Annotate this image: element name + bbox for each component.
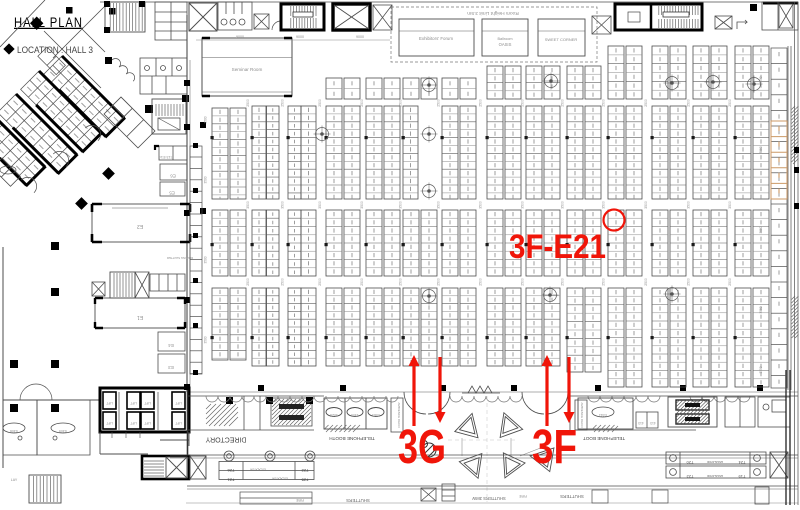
svg-text:G311: G311 <box>599 413 607 417</box>
svg-text:2500: 2500 <box>479 99 483 107</box>
svg-text:3500: 3500 <box>281 201 285 209</box>
svg-text:2500: 2500 <box>521 278 525 286</box>
svg-text:3550: 3550 <box>759 366 763 373</box>
svg-text:3500: 3500 <box>521 201 525 209</box>
svg-text:413: 413 <box>650 421 656 425</box>
svg-text:LIFT: LIFT <box>144 421 151 425</box>
svg-text:Ballroom: Ballroom <box>498 37 513 41</box>
svg-text:TELEPHONE BOOT: TELEPHONE BOOT <box>583 436 625 441</box>
svg-text:2500: 2500 <box>561 278 565 286</box>
svg-text:302A: 302A <box>329 413 337 417</box>
svg-text:2500: 2500 <box>399 99 403 107</box>
svg-text:2500: 2500 <box>281 99 285 107</box>
svg-text:3550: 3550 <box>759 306 763 313</box>
svg-text:ESCALATOR: ESCALATOR <box>272 477 288 481</box>
svg-text:3500: 3500 <box>479 201 483 209</box>
svg-text:HALL PLAN: HALL PLAN <box>14 15 83 30</box>
svg-text:3500: 3500 <box>204 256 208 263</box>
svg-text:3500: 3500 <box>561 201 565 209</box>
svg-text:T26: T26 <box>227 468 235 473</box>
svg-text:2500: 2500 <box>399 278 403 286</box>
svg-text:3550: 3550 <box>759 226 763 233</box>
svg-text:T21: T21 <box>227 478 235 483</box>
svg-text:2500: 2500 <box>561 99 565 107</box>
svg-text:LIFT: LIFT <box>130 401 137 405</box>
svg-text:9000: 9000 <box>296 35 304 39</box>
svg-text:2500: 2500 <box>602 278 606 286</box>
svg-text:2500: 2500 <box>246 278 250 286</box>
svg-text:LIFT: LIFT <box>175 401 182 405</box>
svg-text:E6: E6 <box>170 174 176 179</box>
svg-text:3500: 3500 <box>204 116 208 123</box>
svg-text:2500: 2500 <box>687 99 691 107</box>
svg-text:2500: 2500 <box>318 278 322 286</box>
svg-text:3500: 3500 <box>399 201 403 209</box>
svg-text:LIFT: LIFT <box>144 401 151 405</box>
svg-text:T22: T22 <box>301 468 309 473</box>
svg-text:9000: 9000 <box>356 35 364 39</box>
svg-text:2500: 2500 <box>602 99 606 107</box>
svg-text:2500: 2500 <box>437 278 441 286</box>
svg-text:2500: 2500 <box>687 278 691 286</box>
svg-text:3G: 3G <box>398 421 446 474</box>
svg-text:ROLLING SHUTTER: ROLLING SHUTTER <box>167 256 193 260</box>
svg-text:3500: 3500 <box>602 201 606 209</box>
svg-text:3550: 3550 <box>759 76 763 83</box>
svg-text:3F-E21: 3F-E21 <box>509 228 606 266</box>
svg-text:2500: 2500 <box>437 99 441 107</box>
svg-text:LIFT: LIFT <box>130 421 137 425</box>
svg-text:S306: S306 <box>10 429 18 433</box>
svg-text:LIFT: LIFT <box>106 401 113 405</box>
svg-text:413: 413 <box>638 421 644 425</box>
svg-text:T24: T24 <box>738 460 746 465</box>
svg-text:3500: 3500 <box>204 176 208 183</box>
svg-text:AMBIENCE DECO: AMBIENCE DECO <box>580 402 584 428</box>
svg-text:3500: 3500 <box>318 201 322 209</box>
svg-text:SHUTTERS: SHUTTERS <box>560 494 584 499</box>
svg-text:LIFT: LIFT <box>175 421 182 425</box>
svg-text:3500: 3500 <box>360 201 364 209</box>
svg-text:2500: 2500 <box>318 99 322 107</box>
svg-text:DIRECTORY: DIRECTORY <box>205 436 246 443</box>
svg-text:FIRE: FIRE <box>518 494 526 498</box>
svg-text:V304: V304 <box>351 413 359 417</box>
svg-text:3500: 3500 <box>437 201 441 209</box>
svg-text:E2: E2 <box>137 223 143 229</box>
svg-text:9000: 9000 <box>236 35 244 39</box>
svg-text:2500: 2500 <box>728 99 732 107</box>
svg-text:ESCALATOR: ESCALATOR <box>707 474 723 478</box>
svg-text:Room Height Limit 3.5m: Room Height Limit 3.5m <box>467 10 518 16</box>
svg-text:T22: T22 <box>686 474 694 479</box>
svg-text:3F: 3F <box>532 421 577 474</box>
svg-text:T25: T25 <box>301 478 309 483</box>
svg-text:2500: 2500 <box>479 278 483 286</box>
svg-text:2500: 2500 <box>521 99 525 107</box>
svg-text:FIRE: FIRE <box>295 498 303 502</box>
svg-text:SHUTTERS: SHUTTERS <box>346 498 370 503</box>
svg-text:E5: E5 <box>169 191 175 196</box>
svg-text:E4: E4 <box>168 343 174 348</box>
svg-text:Exhibitors' Forum: Exhibitors' Forum <box>419 36 453 41</box>
svg-text:2500: 2500 <box>281 278 285 286</box>
svg-text:2500: 2500 <box>360 278 364 286</box>
svg-text:3500: 3500 <box>246 201 250 209</box>
svg-text:T20: T20 <box>686 460 694 465</box>
svg-text:TELEPHONE BOOTH: TELEPHONE BOOTH <box>329 436 374 441</box>
svg-text:2500: 2500 <box>360 99 364 107</box>
svg-text:SHUTTERS 3MW: SHUTTERS 3MW <box>472 496 506 501</box>
svg-text:Seminar Room: Seminar Room <box>232 67 263 72</box>
svg-text:G303: G303 <box>372 413 380 417</box>
svg-text:3500: 3500 <box>687 201 691 209</box>
svg-text:SWEET CORNER: SWEET CORNER <box>545 37 578 42</box>
svg-text:2500: 2500 <box>246 99 250 107</box>
svg-text:ESCALATOR: ESCALATOR <box>250 468 266 472</box>
svg-text:LOCATION : HALL 3: LOCATION : HALL 3 <box>17 45 93 55</box>
svg-text:3500: 3500 <box>644 201 648 209</box>
svg-text:3500: 3500 <box>204 336 208 343</box>
svg-text:ESCALATOR: ESCALATOR <box>707 460 723 464</box>
svg-text:T19: T19 <box>738 474 746 479</box>
svg-text:3500: 3500 <box>728 201 732 209</box>
svg-text:E1: E1 <box>137 314 143 320</box>
svg-text:2500: 2500 <box>644 278 648 286</box>
svg-text:LAY: LAY <box>11 478 18 482</box>
svg-text:E13 E14: E13 E14 <box>159 155 174 159</box>
svg-text:LIFT: LIFT <box>106 421 113 425</box>
svg-text:3550: 3550 <box>759 146 763 153</box>
svg-text:E3: E3 <box>168 365 174 370</box>
svg-text:2500: 2500 <box>644 99 648 107</box>
svg-text:OASIS: OASIS <box>499 42 512 47</box>
svg-text:2500: 2500 <box>728 278 732 286</box>
svg-text:S305: S305 <box>59 429 67 433</box>
